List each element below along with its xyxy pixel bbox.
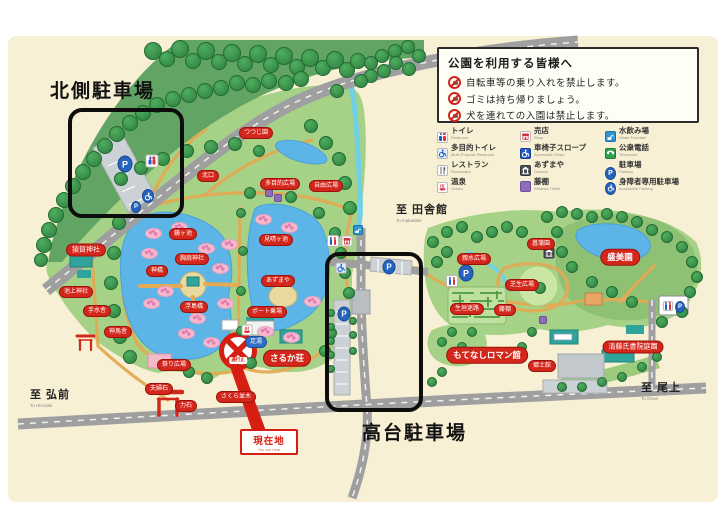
phone-icon xyxy=(605,148,616,159)
legend-item: 多目的トイレMulti-Purpose Restroom xyxy=(437,144,520,161)
wisteria-icon xyxy=(274,194,282,202)
tree-icon xyxy=(354,74,368,88)
tree-icon xyxy=(467,327,477,337)
tree-icon xyxy=(319,136,333,150)
tree-icon xyxy=(330,84,344,98)
tree-icon xyxy=(427,377,437,387)
tree-icon xyxy=(402,62,416,76)
map-label-pill: 池上神社 xyxy=(59,286,93,298)
legend-item: トイレRestroom xyxy=(437,127,520,144)
map-label-pill: 猿賀神社 xyxy=(66,244,106,257)
map-label-pill: 神橋 xyxy=(146,265,168,277)
tree-icon xyxy=(541,211,553,223)
map-label-pill: 菖蒲園 xyxy=(527,238,555,250)
tree-icon xyxy=(556,246,568,258)
toilet-icon xyxy=(437,132,448,143)
wisteria-icon xyxy=(265,189,273,197)
map-label-pill: もてなしロマン館 xyxy=(446,347,528,364)
tree-icon xyxy=(447,327,457,337)
tree-icon xyxy=(377,64,391,78)
tree-icon xyxy=(557,382,567,392)
wisteria-icon xyxy=(539,316,547,324)
park-notice-panel: 公園を利用する皆様へ 自転車等の乗り入れを禁止します。ゴミは持ち帰りましょう。犬… xyxy=(437,47,699,123)
map-label-pill: 藤棚 xyxy=(494,304,516,316)
wisteria-icon xyxy=(520,181,531,192)
no-litter-icon xyxy=(448,92,461,105)
map-label-pill: 足湯 xyxy=(245,336,267,348)
map-label-pill: 芝生広場 xyxy=(505,279,539,291)
tree-icon xyxy=(245,77,261,93)
tree-icon xyxy=(165,91,181,107)
lotus-flowers-icon xyxy=(212,263,229,274)
tree-icon xyxy=(586,276,598,288)
tree-icon xyxy=(293,71,309,87)
tree-icon xyxy=(229,75,245,91)
tree-icon xyxy=(571,208,583,220)
legend-item: 温泉Onsen xyxy=(437,178,520,195)
tree-icon xyxy=(456,221,468,233)
legend-label-en: Restroom xyxy=(451,136,474,140)
tree-icon xyxy=(527,327,537,337)
map-label-pill: あずまや xyxy=(261,275,295,287)
tree-icon xyxy=(606,286,618,298)
notice-title: 公園を利用する皆様へ xyxy=(448,55,688,71)
tree-icon xyxy=(684,286,696,298)
lotus-flowers-icon xyxy=(143,298,160,309)
toilet-icon xyxy=(663,301,673,311)
accessible-slope-icon xyxy=(520,148,531,159)
accessible-toilet-icon xyxy=(437,148,448,159)
notice-rule-text: ゴミは持ち帰りましょう。 xyxy=(466,92,585,106)
map-label-pill: ボート乗場 xyxy=(247,306,287,318)
map-label-pill: 盛美園 xyxy=(600,249,640,266)
map-label-pill: 浮島橋 xyxy=(180,301,208,313)
tree-icon xyxy=(601,208,613,220)
lotus-flowers-icon xyxy=(283,332,300,343)
map-label-pill: 北口 xyxy=(197,170,219,182)
tree-icon xyxy=(566,261,578,273)
tree-icon xyxy=(201,372,213,384)
tree-icon xyxy=(631,216,643,228)
shop-icon xyxy=(520,131,531,142)
tree-icon xyxy=(431,256,443,268)
tree-icon xyxy=(551,226,563,238)
tree-icon xyxy=(304,119,318,133)
tree-icon xyxy=(691,271,703,283)
water-icon xyxy=(605,131,616,142)
map-label-pill: つつじ園 xyxy=(239,127,273,139)
lotus-flowers-icon xyxy=(178,328,195,339)
tree-icon xyxy=(637,362,647,372)
tree-icon xyxy=(36,237,52,253)
map-label-pill: 親水広場 xyxy=(457,253,491,265)
gazebo-icon xyxy=(520,165,531,176)
tree-icon xyxy=(471,231,483,243)
north-parking-highlight-box xyxy=(68,108,184,218)
tree-icon xyxy=(389,56,403,70)
map-label-pill: 手水舎 xyxy=(83,305,111,317)
park-guide-map: PPPPPP猿賀神社池上神社手水舎神馬舎北口鏡ヶ池胸肩神社神橋浮島橋見晴ヶ池あず… xyxy=(0,0,726,510)
tree-icon xyxy=(244,187,256,199)
map-label-pill: 胸肩神社 xyxy=(175,253,209,265)
notice-rule-text: 自転車等の乗り入れを禁止します。 xyxy=(466,75,625,89)
map-label-pill: 郷土館 xyxy=(528,360,556,372)
tree-icon xyxy=(181,87,197,103)
lotus-flowers-icon xyxy=(255,214,272,225)
restaurant-icon xyxy=(437,165,448,176)
lotus-flowers-icon xyxy=(203,337,220,348)
tree-icon xyxy=(238,246,248,256)
onsen-icon xyxy=(437,182,448,193)
notice-rule: 犬を連れての入園は禁止します。 xyxy=(448,108,688,122)
lotus-flowers-icon xyxy=(217,298,234,309)
legend-item: 水飲み場Water Fountain xyxy=(605,127,713,144)
water-icon xyxy=(353,225,363,235)
tree-icon xyxy=(107,246,121,260)
map-label-pill: 神馬舎 xyxy=(104,326,132,338)
parking-icon: P xyxy=(605,167,616,178)
north-parking-label: 北側駐車場 xyxy=(50,76,155,103)
map-label-pill: 自由広場 xyxy=(309,180,343,192)
tree-icon xyxy=(104,276,118,290)
tree-icon xyxy=(253,145,265,157)
legend-label-en: Multi-Purpose Restroom xyxy=(451,153,496,157)
map-label-pill: 祭り広場 xyxy=(157,359,191,371)
tree-icon xyxy=(652,352,662,362)
tree-icon xyxy=(556,206,568,218)
direction-inakadate: 至 田舎館 To Inakadate xyxy=(396,201,448,223)
tree-icon xyxy=(437,337,447,347)
tree-icon xyxy=(617,372,627,382)
tree-icon xyxy=(586,211,598,223)
notice-rules: 自転車等の乗り入れを禁止します。ゴミは持ち帰りましょう。犬を連れての入園は禁止し… xyxy=(448,75,688,122)
legend-item: P駐車場Parking xyxy=(605,161,713,178)
tree-icon xyxy=(123,350,137,364)
legend-item: 身障者専用駐車場Accessible Parking xyxy=(605,178,713,195)
parking-icon: P xyxy=(459,265,474,280)
direction-onoe: 至 尾上 To Onoe xyxy=(641,379,681,401)
tree-icon xyxy=(332,152,346,166)
lotus-flowers-icon xyxy=(221,239,238,250)
legend-label-en: Telephone xyxy=(619,153,649,157)
tree-icon xyxy=(343,201,357,215)
legend-item: 公衆電話Telephone xyxy=(605,144,713,161)
tree-icon xyxy=(48,207,64,223)
map-label-pill: 夫婦石 xyxy=(145,383,173,395)
legend-item: レストランRestaurant xyxy=(437,161,520,178)
legend-label-en: Wisteria Trellis xyxy=(534,187,560,191)
tree-icon xyxy=(204,140,218,154)
tree-icon xyxy=(676,241,688,253)
map-label-pill: さくら並木 xyxy=(216,391,256,403)
tree-icon xyxy=(213,80,229,96)
tree-icon xyxy=(197,83,213,99)
tree-icon xyxy=(375,49,389,63)
tree-icon xyxy=(686,256,698,268)
map-label-pill: 清藤氏書院庭園 xyxy=(603,341,664,354)
tree-icon xyxy=(236,208,246,218)
tree-icon xyxy=(112,216,126,230)
tree-icon xyxy=(577,382,587,392)
map-label-pill: さるか荘 xyxy=(263,350,311,367)
map-label-pill: 力石 xyxy=(175,400,197,412)
legend-label-en: Restaurant xyxy=(451,170,489,174)
accessible-parking-icon xyxy=(605,182,616,193)
shop-icon xyxy=(342,236,353,247)
map-legend: トイレRestroom多目的トイレMulti-Purpose Restroomレ… xyxy=(437,127,713,195)
current-location-box: 現在地 You are here xyxy=(240,429,298,455)
map-label-pill: 多目的広場 xyxy=(260,178,300,190)
toilet-icon xyxy=(327,235,339,247)
tree-icon xyxy=(41,222,57,238)
tree-icon xyxy=(261,73,277,89)
tree-icon xyxy=(427,236,439,248)
tree-icon xyxy=(412,49,426,63)
legend-item: 車椅子スロープAccessible Slope xyxy=(520,144,605,161)
road-closed-label: 通行止 xyxy=(229,357,247,364)
tree-icon xyxy=(285,191,297,203)
legend-label-en: Accessible Slope xyxy=(534,153,586,157)
tree-icon xyxy=(597,377,607,387)
parking-icon: P xyxy=(675,301,685,311)
map-label-pill: 生垣迷路 xyxy=(450,303,484,315)
legend-label-en: Gazebo xyxy=(534,170,564,174)
tree-icon xyxy=(616,211,628,223)
tree-icon xyxy=(516,226,528,238)
tree-icon xyxy=(441,226,453,238)
map-label-pill: 鏡ヶ池 xyxy=(169,228,197,240)
no-dog-icon xyxy=(448,109,461,122)
tree-icon xyxy=(501,221,513,233)
legend-label-en: Onsen xyxy=(451,187,466,191)
tree-icon xyxy=(656,316,668,328)
legend-item: 売店Shop xyxy=(520,127,605,144)
tree-icon xyxy=(245,357,257,369)
tree-icon xyxy=(34,253,48,267)
lotus-flowers-icon xyxy=(141,248,158,259)
hilltop-parking-label: 高台駐車場 xyxy=(362,418,467,445)
tree-icon xyxy=(441,246,453,258)
legend-label-en: Parking xyxy=(619,170,642,174)
no-bicycle-icon xyxy=(448,76,461,89)
tree-icon xyxy=(236,286,246,296)
tree-icon xyxy=(646,224,658,236)
map-label-pill: 見晴ヶ池 xyxy=(259,234,293,246)
onsen-icon xyxy=(242,325,253,336)
tree-icon xyxy=(228,137,242,151)
tree-icon xyxy=(313,207,325,219)
lotus-flowers-icon xyxy=(304,296,321,307)
lotus-flowers-icon xyxy=(145,228,162,239)
legend-item: 藤棚Wisteria Trellis xyxy=(520,178,605,195)
legend-label-en: Accessible Parking xyxy=(619,187,679,191)
notice-rule: 自転車等の乗り入れを禁止します。 xyxy=(448,75,688,89)
legend-label-en: Water Fountain xyxy=(619,136,649,140)
legend-label-en: Shop xyxy=(534,136,549,140)
legend-item: あずまやGazebo xyxy=(520,161,605,178)
notice-rule: ゴミは持ち帰りましょう。 xyxy=(448,92,688,106)
tree-icon xyxy=(437,367,447,377)
lotus-flowers-icon xyxy=(157,286,174,297)
tree-icon xyxy=(486,226,498,238)
direction-hirosaki: 至 弘前 To Hirosaki xyxy=(30,386,70,408)
toilet-icon xyxy=(446,275,458,287)
lotus-flowers-icon xyxy=(281,222,298,233)
hilltop-parking-highlight-box xyxy=(325,252,423,412)
tree-icon xyxy=(626,296,638,308)
notice-rule-text: 犬を連れての入園は禁止します。 xyxy=(466,108,615,122)
tree-icon xyxy=(661,231,673,243)
lotus-flowers-icon xyxy=(189,313,206,324)
tree-icon xyxy=(278,75,294,91)
